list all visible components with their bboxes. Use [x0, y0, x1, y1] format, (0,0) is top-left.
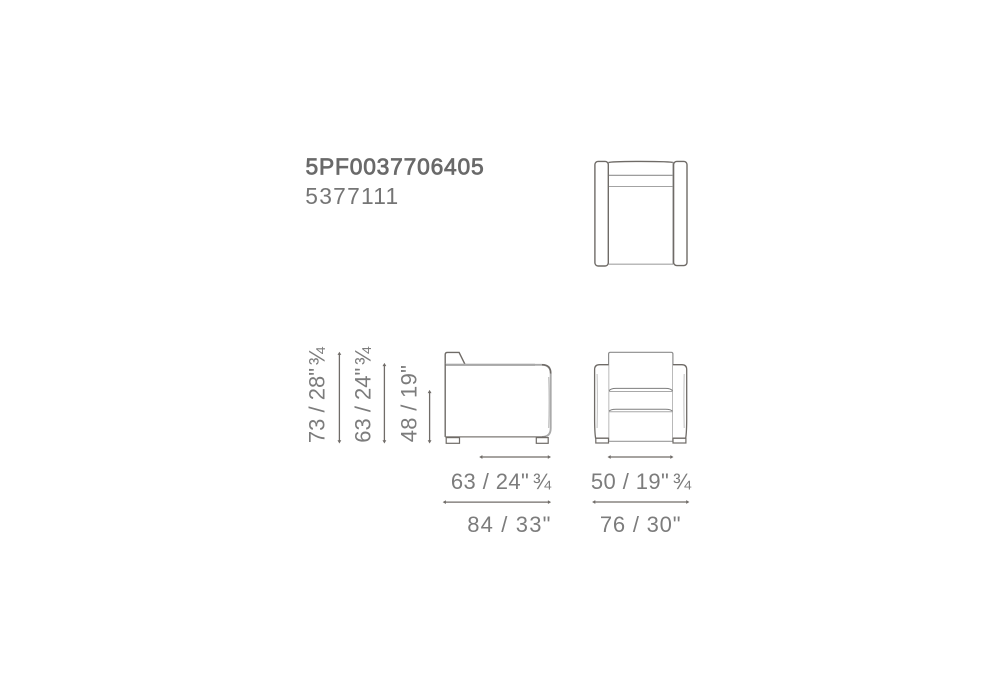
svg-text:48 / 19": 48 / 19" [396, 365, 421, 443]
svg-text:63 / 24"¾: 63 / 24"¾ [351, 346, 376, 443]
svg-text:84 / 33": 84 / 33" [467, 512, 551, 537]
svg-text:73 / 28"¾: 73 / 28"¾ [305, 346, 330, 443]
svg-text:50 / 19"¾: 50 / 19"¾ [591, 469, 692, 494]
svg-text:63 / 24"¾: 63 / 24"¾ [451, 469, 552, 494]
svg-text:5PF0037706405: 5PF0037706405 [306, 153, 485, 179]
svg-text:5377111: 5377111 [305, 183, 399, 209]
svg-text:76 / 30": 76 / 30" [600, 512, 682, 537]
